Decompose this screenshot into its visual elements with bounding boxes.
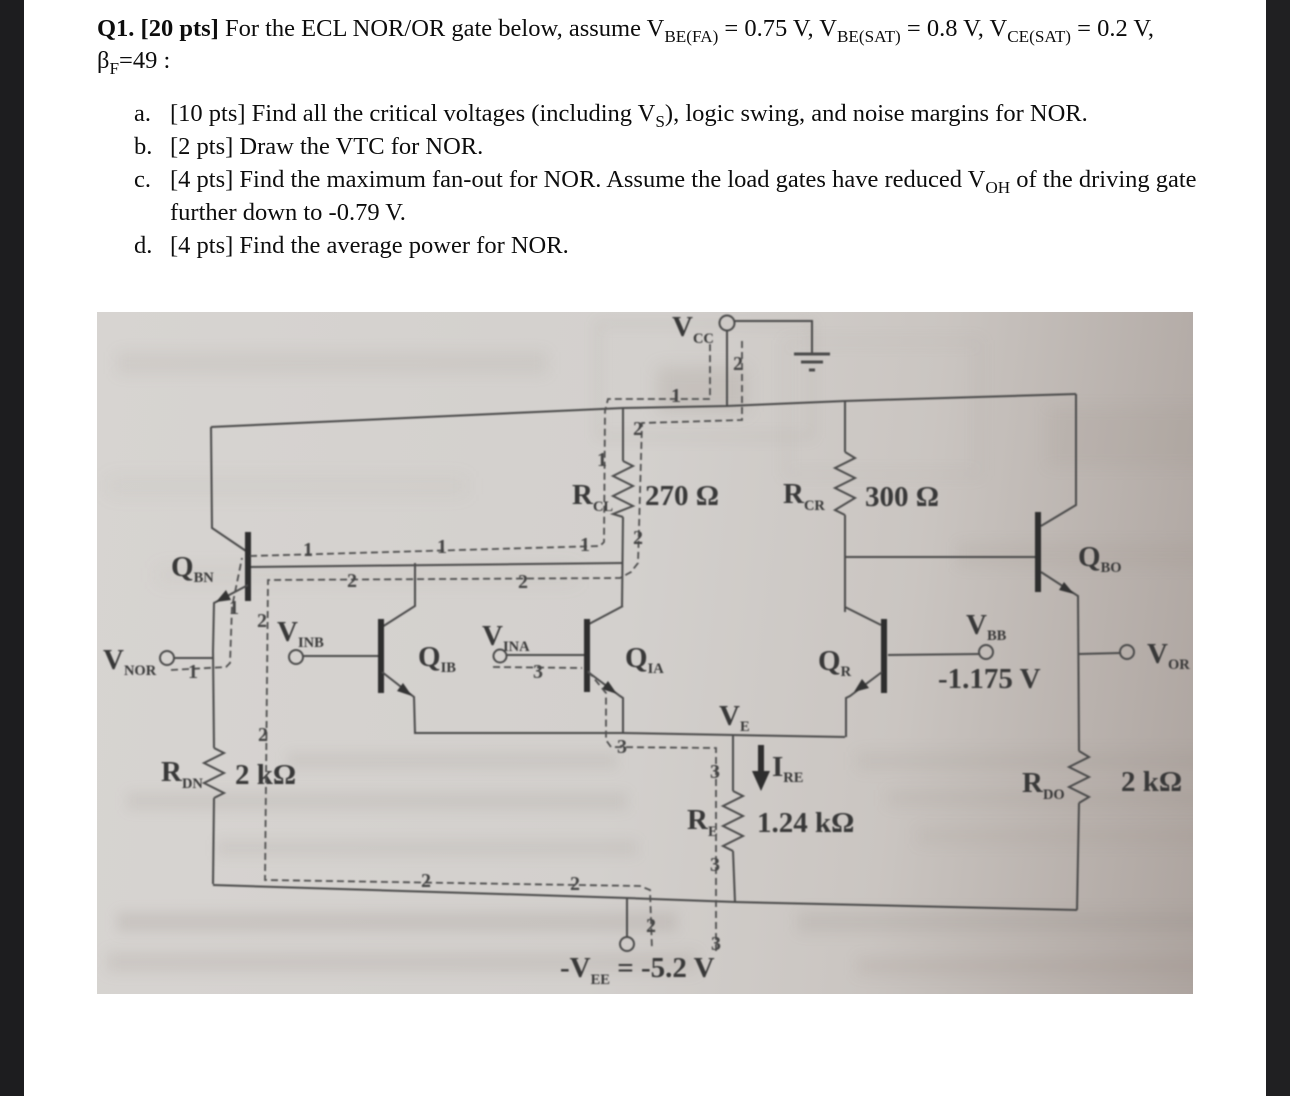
- svg-text:VINA: VINA: [482, 620, 530, 655]
- svg-text:2: 2: [733, 353, 743, 375]
- svg-text:RE: RE: [687, 804, 718, 840]
- svg-text:2: 2: [257, 610, 267, 632]
- svg-text:VINB: VINB: [277, 616, 324, 651]
- svg-text:2: 2: [258, 724, 268, 746]
- svg-text:QBO: QBO: [1078, 541, 1122, 576]
- svg-text:RDN: RDN: [161, 756, 203, 792]
- svg-text:RDO: RDO: [1022, 767, 1065, 803]
- svg-text:QIB: QIB: [418, 641, 456, 676]
- svg-text:QR: QR: [818, 645, 852, 680]
- svg-text:-VEE = -5.2 V: -VEE = -5.2 V: [560, 952, 715, 988]
- svg-text:QIA: QIA: [625, 642, 664, 677]
- svg-text:1: 1: [597, 449, 607, 471]
- svg-text:300 Ω: 300 Ω: [865, 481, 939, 513]
- svg-text:VCC: VCC: [672, 312, 714, 347]
- svg-text:1: 1: [188, 661, 198, 683]
- svg-text:1.24 kΩ: 1.24 kΩ: [757, 807, 854, 839]
- svg-text:1: 1: [437, 536, 447, 558]
- svg-text:VBB: VBB: [966, 609, 1007, 644]
- svg-text:1: 1: [303, 539, 313, 561]
- svg-text:270 Ω: 270 Ω: [645, 480, 719, 512]
- svg-text:QBN: QBN: [171, 551, 214, 586]
- svg-text:IRE: IRE: [772, 751, 803, 786]
- svg-text:VNOR: VNOR: [103, 644, 157, 679]
- svg-text:2: 2: [633, 418, 643, 440]
- svg-text:-1.175 V: -1.175 V: [938, 663, 1041, 695]
- svg-text:VE: VE: [719, 700, 750, 735]
- svg-text:1: 1: [229, 597, 239, 619]
- svg-text:RCL: RCL: [572, 479, 613, 515]
- svg-text:2: 2: [646, 915, 656, 937]
- svg-text:2: 2: [633, 527, 643, 549]
- svg-text:3: 3: [533, 661, 543, 683]
- svg-text:3: 3: [710, 761, 720, 783]
- svg-text:RCR: RCR: [783, 478, 825, 514]
- svg-text:VOR: VOR: [1147, 638, 1190, 673]
- svg-text:3: 3: [711, 933, 721, 955]
- svg-text:2: 2: [347, 570, 357, 592]
- svg-text:1: 1: [671, 385, 681, 407]
- svg-text:2: 2: [570, 873, 580, 895]
- svg-text:3: 3: [710, 854, 720, 876]
- svg-text:2: 2: [421, 870, 431, 892]
- svg-text:2 kΩ: 2 kΩ: [1121, 766, 1182, 798]
- svg-text:2 kΩ: 2 kΩ: [235, 759, 296, 791]
- svg-text:2: 2: [518, 571, 528, 593]
- svg-text:3: 3: [617, 736, 627, 758]
- svg-text:1: 1: [580, 534, 590, 556]
